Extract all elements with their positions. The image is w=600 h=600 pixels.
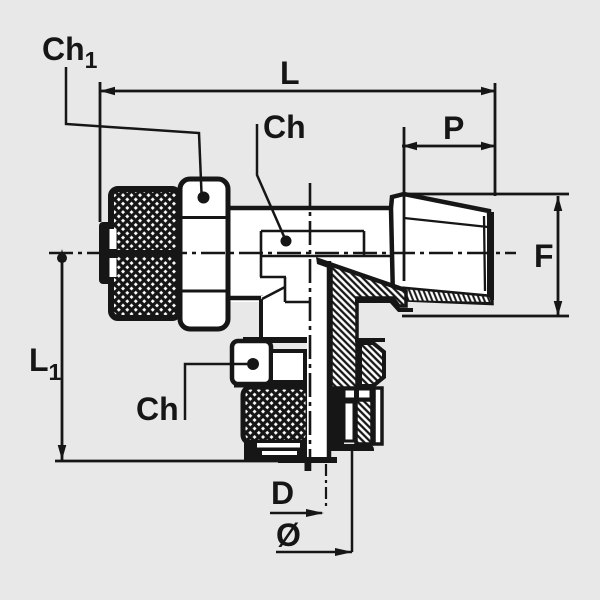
svg-text:Ch: Ch <box>263 109 306 145</box>
svg-text:D: D <box>271 475 294 511</box>
svg-text:F: F <box>534 238 554 274</box>
svg-text:P: P <box>443 110 464 146</box>
svg-text:L: L <box>280 55 300 91</box>
svg-text:Ø: Ø <box>276 517 301 553</box>
svg-text:Ch: Ch <box>136 391 179 427</box>
